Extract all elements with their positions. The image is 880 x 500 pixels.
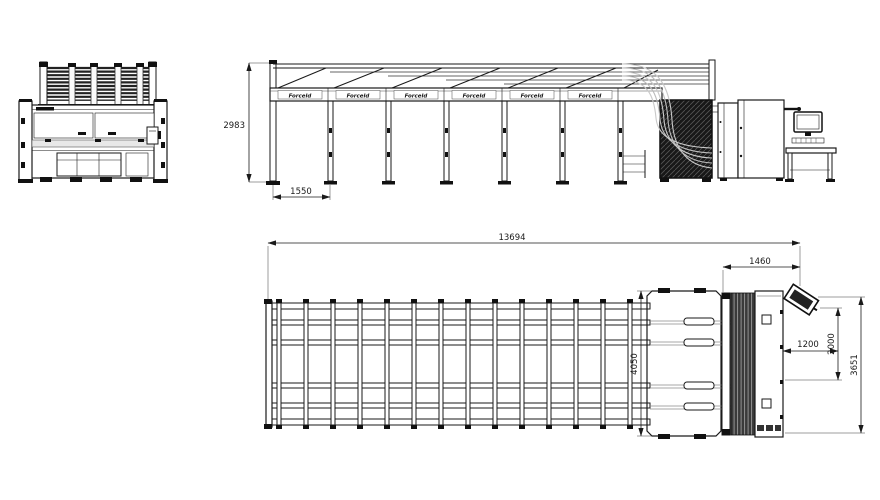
plan-machine-bed [722, 291, 783, 437]
dim-total-length: 13694 [268, 233, 800, 300]
elevation-step-ladder [623, 150, 645, 178]
beam-brand-label: Forceld [579, 93, 602, 99]
console-desk [786, 148, 836, 153]
dim-text-2000: 2000 [827, 333, 837, 355]
dim-overall-width: 3651 [785, 297, 865, 433]
elevation-posts [324, 101, 627, 185]
dim-height-2983: 2983 [223, 63, 272, 182]
beam-brand-label: Forceld [347, 93, 370, 99]
front-logo-bar [36, 107, 54, 111]
monitor-arm-joint [797, 107, 801, 111]
laser-source-cabinet [712, 103, 738, 181]
plan-conveyor-frame [264, 299, 650, 429]
front-view [18, 62, 168, 183]
dim-text-1550: 1550 [290, 187, 312, 197]
beam-brand-label: Forceld [289, 93, 312, 99]
dim-text-3651: 3651 [850, 354, 860, 376]
drawing-canvas: 2983 [0, 0, 880, 500]
front-machine-body [18, 99, 168, 183]
dim-text-1200: 1200 [797, 340, 819, 350]
dim-bay-1550: 1550 [273, 185, 330, 200]
front-roller-cage [38, 62, 158, 105]
gantry-strip [731, 293, 755, 435]
electrical-cabinet [738, 100, 784, 181]
plan-view: 13694 1460 [264, 233, 865, 439]
dim-text-4050: 4050 [630, 353, 640, 375]
dim-text-2983: 2983 [223, 121, 245, 131]
side-elevation-view: 2983 [223, 60, 836, 200]
keyboard-icon [792, 138, 824, 143]
front-control-box [147, 127, 158, 144]
dim-text-1460: 1460 [749, 257, 771, 267]
beam-brand-label: Forceld [463, 93, 486, 99]
beam-brand-label: Forceld [521, 93, 544, 99]
operator-console [784, 107, 836, 182]
technical-drawing-svg: 2983 [0, 0, 880, 500]
elevation-beam: Forceld Forceld Forceld Forceld Forceld … [270, 88, 662, 101]
dim-machine-width: 1460 [723, 257, 800, 292]
dim-text-total: 13694 [498, 233, 525, 243]
plan-conveyor-crossbars [276, 299, 633, 429]
dim-conveyor-width: 4050 [630, 291, 652, 436]
beam-brand-label: Forceld [405, 93, 428, 99]
plan-console-monitor [784, 284, 822, 317]
